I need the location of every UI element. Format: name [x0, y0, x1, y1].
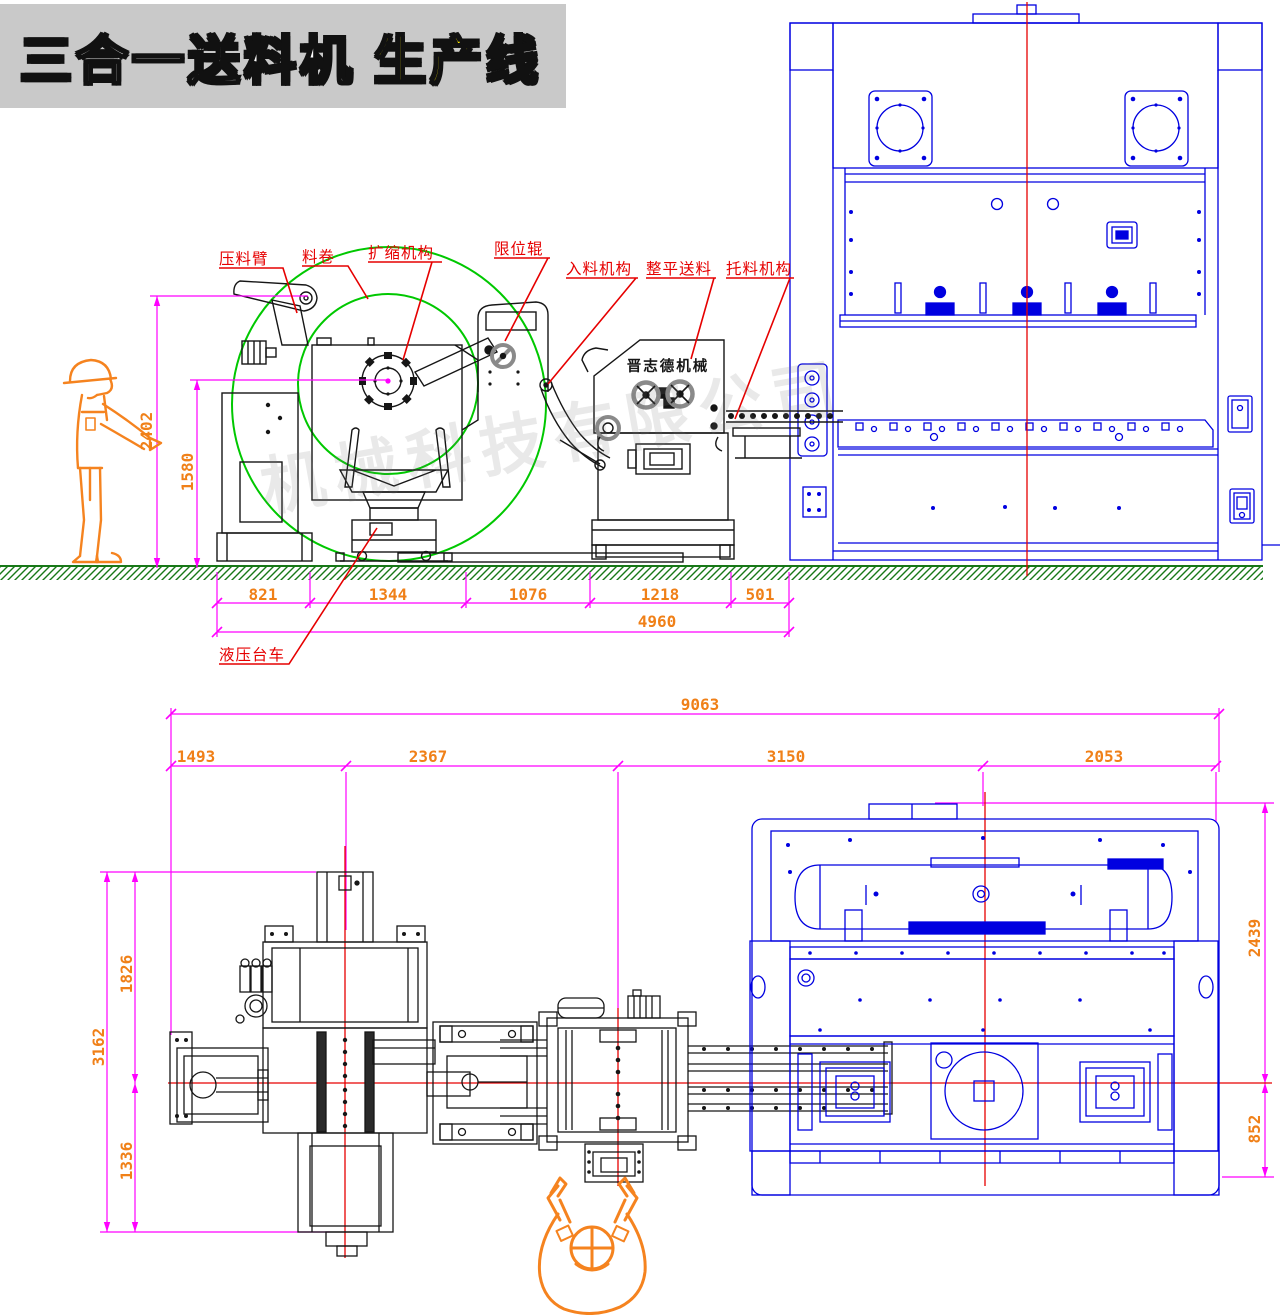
dim-plan-press-front: 852 [1245, 1079, 1265, 1179]
dim-plan-left-lower: 1336 [117, 1111, 137, 1211]
dim-coil-center-height: 1580 [178, 422, 198, 522]
dim-plan-seg2: 2367 [409, 747, 448, 766]
dim-plan-seg3: 3150 [767, 747, 806, 766]
dim-plan-total: 9063 [681, 695, 720, 714]
cad-sheet: 机械科技有限公司 三合一送料机 生产线 压料臂 料卷 扩缩机构 限位辊 入料机构… [0, 0, 1280, 1315]
label-press-arm: 压料臂 [219, 247, 269, 269]
dim-plan-seg1: 1493 [177, 747, 216, 766]
dim-seg2: 1344 [369, 585, 408, 604]
page-title-highlight: 生产线 [374, 19, 542, 94]
page-title: 三合一送料机 [20, 19, 356, 94]
dim-seg4: 1218 [641, 585, 680, 604]
title-banner: 三合一送料机 生产线 [0, 4, 566, 108]
dim-plan-left-upper: 1826 [117, 924, 137, 1024]
leveler-plan-view [500, 990, 892, 1182]
label-coil: 料卷 [302, 245, 335, 267]
dim-total-length: 4960 [638, 612, 677, 631]
label-leveler-feeder: 整平送料 [646, 257, 712, 279]
dim-plan-press-depth: 2439 [1245, 888, 1265, 988]
label-infeed-mechanism: 入料机构 [566, 257, 632, 279]
dim-seg1: 821 [249, 585, 278, 604]
label-hydraulic-trolley: 液压台车 [219, 643, 285, 665]
label-expand-mechanism: 扩缩机构 [368, 241, 434, 263]
label-limit-roller: 限位辊 [494, 237, 544, 259]
cad-drawing [0, 0, 1280, 1315]
ground-hatch [0, 566, 1263, 580]
machine-brand-text: 晋志德机械 [620, 355, 716, 376]
uncoiler-plan-view [170, 872, 537, 1256]
press-side-view [790, 5, 1280, 560]
worker-top-view [539, 1178, 645, 1314]
plan-view-dimensions [100, 708, 1274, 1232]
plan-view-centerlines [168, 792, 1272, 1258]
dim-seg5: 501 [746, 585, 775, 604]
dim-plan-left-total: 3162 [89, 997, 109, 1097]
dim-plan-seg4: 2053 [1085, 747, 1124, 766]
dim-total-height: 2402 [137, 381, 157, 481]
dim-seg3: 1076 [509, 585, 548, 604]
label-support-mechanism: 托料机构 [726, 257, 792, 279]
